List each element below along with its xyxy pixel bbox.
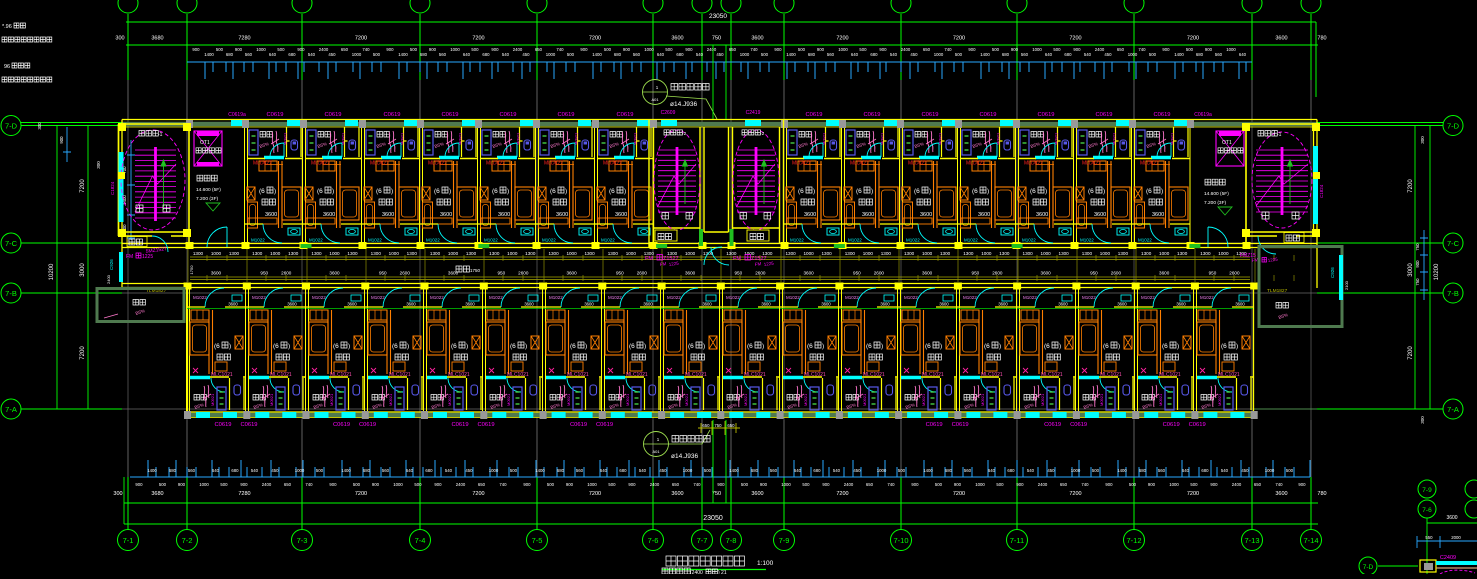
svg-text:1300: 1300 (845, 251, 856, 256)
svg-text:7-6: 7-6 (648, 536, 659, 545)
svg-text:1300: 1300 (1059, 251, 1070, 256)
svg-text:640: 640 (988, 468, 996, 473)
svg-text:7-1: 7-1 (123, 536, 134, 545)
svg-text:7200: 7200 (953, 491, 965, 497)
svg-text:1300: 1300 (371, 251, 382, 256)
svg-text:1000: 1000 (626, 251, 637, 256)
svg-text:560: 560 (633, 52, 641, 57)
svg-text:900: 900 (1148, 482, 1156, 487)
svg-text:900: 900 (911, 482, 919, 487)
svg-text:2600: 2600 (874, 271, 885, 276)
svg-text:680: 680 (1196, 52, 1204, 57)
svg-text:C0619: C0619 (240, 422, 257, 428)
svg-text:1400: 1400 (729, 468, 739, 473)
svg-text:OT1: OT1 (1222, 140, 1232, 146)
svg-text:1000: 1000 (587, 482, 597, 487)
svg-text:1300: 1300 (1141, 251, 1152, 256)
svg-text:1000: 1000 (566, 251, 577, 256)
svg-text:950: 950 (616, 271, 624, 276)
svg-text:1000: 1000 (1159, 251, 1170, 256)
svg-text:500: 500 (608, 482, 616, 487)
svg-text:2600: 2600 (281, 271, 292, 276)
svg-text:1400: 1400 (147, 468, 157, 473)
svg-text:FM: FM (733, 256, 741, 262)
svg-text:7-13: 7-13 (1244, 536, 1259, 545)
svg-text:640: 640 (851, 52, 859, 57)
svg-text:3600: 3600 (685, 271, 696, 276)
svg-text:500: 500 (277, 47, 285, 52)
svg-text:900: 900 (717, 482, 725, 487)
svg-text:750: 750 (1415, 278, 1420, 286)
svg-text:7200: 7200 (836, 36, 848, 42)
svg-text:950: 950 (1090, 271, 1098, 276)
svg-text:450: 450 (1047, 468, 1055, 473)
svg-text:680: 680 (363, 468, 371, 473)
svg-text:C1824: C1824 (110, 181, 115, 195)
svg-text:680: 680 (813, 468, 821, 473)
svg-text:680: 680 (226, 52, 234, 57)
svg-text:C926: C926 (1330, 267, 1335, 278)
svg-text:1000: 1000 (922, 251, 933, 256)
svg-text:650: 650 (478, 482, 486, 487)
svg-text:900: 900 (240, 482, 248, 487)
svg-text:1000: 1000 (546, 52, 556, 57)
svg-text:C0619: C0619 (952, 422, 969, 428)
svg-text:500: 500 (414, 482, 422, 487)
svg-text:680: 680 (1064, 52, 1072, 57)
svg-text:) 21: ) 21 (718, 570, 727, 574)
svg-text:1300: 1300 (940, 251, 951, 256)
svg-text:650: 650 (1254, 482, 1262, 487)
svg-text:1:100: 1:100 (757, 560, 774, 567)
svg-text:C2609: C2609 (661, 110, 676, 116)
svg-text:1000: 1000 (211, 251, 222, 256)
svg-text:C0619: C0619 (557, 112, 574, 118)
svg-text:C0619: C0619 (616, 112, 633, 118)
svg-text:1300: 1300 (881, 251, 892, 256)
svg-text:-2: -2 (760, 131, 765, 137)
svg-text:1300: 1300 (466, 251, 477, 256)
svg-text:-2: -2 (682, 131, 687, 137)
svg-text:900: 900 (491, 47, 499, 52)
svg-text:500: 500 (604, 47, 612, 52)
svg-text:7280: 7280 (238, 491, 250, 497)
svg-text:900: 900 (235, 47, 243, 52)
svg-text:(2400: (2400 (690, 570, 703, 574)
svg-text:2400: 2400 (650, 482, 660, 487)
svg-text:7-10: 7-10 (893, 536, 908, 545)
svg-text:1300: 1300 (311, 251, 322, 256)
svg-text:1000: 1000 (740, 52, 750, 57)
svg-text:640: 640 (406, 468, 414, 473)
svg-text:560: 560 (576, 468, 584, 473)
svg-text:3600: 3600 (1446, 515, 1457, 521)
svg-text:900: 900 (178, 482, 186, 487)
svg-text:500: 500 (802, 482, 810, 487)
svg-text:C0619: C0619 (926, 422, 943, 428)
svg-text:1400: 1400 (980, 52, 990, 57)
svg-text:7200: 7200 (1069, 36, 1081, 42)
svg-text:500: 500 (704, 468, 712, 473)
svg-text:900: 900 (1011, 47, 1019, 52)
svg-text:2400: 2400 (106, 274, 111, 284)
svg-text:500: 500 (1092, 468, 1100, 473)
svg-text:7200: 7200 (472, 491, 484, 497)
svg-text:450: 450 (910, 52, 918, 57)
svg-text:C0619: C0619 (1189, 422, 1206, 428)
svg-text:1300: 1300 (821, 251, 832, 256)
svg-text:650: 650 (702, 423, 710, 428)
svg-text:500: 500 (216, 47, 224, 52)
svg-text:1400: 1400 (923, 468, 933, 473)
svg-text:1750: 1750 (470, 268, 481, 273)
svg-text:740: 740 (944, 47, 952, 52)
svg-text:640: 640 (269, 52, 277, 57)
svg-text:680: 680 (870, 52, 878, 57)
svg-text:450: 450 (271, 468, 279, 473)
svg-text:1000: 1000 (877, 468, 887, 473)
svg-text:450: 450 (853, 468, 861, 473)
svg-text:450: 450 (1104, 52, 1112, 57)
svg-text:740: 740 (1081, 482, 1089, 487)
svg-text:1300: 1300 (548, 251, 559, 256)
svg-text:1300: 1300 (1082, 251, 1093, 256)
svg-text:500: 500 (798, 47, 806, 52)
svg-text:540: 540 (251, 468, 259, 473)
svg-text:740: 740 (556, 47, 564, 52)
svg-text:1300: 1300 (489, 251, 500, 256)
svg-text:C0619: C0619 (1153, 112, 1170, 118)
svg-text:3600: 3600 (922, 271, 933, 276)
svg-text:500: 500 (1286, 468, 1294, 473)
svg-text:3600: 3600 (751, 491, 763, 497)
svg-text:640: 640 (600, 468, 608, 473)
svg-text:900: 900 (1210, 482, 1218, 487)
svg-text:680: 680 (751, 468, 759, 473)
svg-text:2400: 2400 (513, 47, 523, 52)
svg-text:2400: 2400 (844, 482, 854, 487)
svg-text:650: 650 (866, 482, 874, 487)
svg-text:900: 900 (817, 47, 825, 52)
svg-text:560: 560 (1158, 468, 1166, 473)
svg-text:7-B: 7-B (1447, 289, 1459, 298)
svg-text:7-12: 7-12 (1126, 536, 1141, 545)
svg-text:1400: 1400 (204, 52, 214, 57)
svg-text:560: 560 (827, 52, 835, 57)
svg-text:1000: 1000 (389, 251, 400, 256)
svg-text:TLM1827: TLM1827 (1267, 288, 1288, 294)
svg-text:C0619: C0619 (570, 422, 587, 428)
svg-text:680: 680 (231, 468, 239, 473)
svg-text:-1: -1 (158, 132, 163, 138)
svg-text:560: 560 (245, 52, 253, 57)
svg-text:750: 750 (712, 36, 721, 42)
svg-text:560: 560 (1021, 52, 1029, 57)
svg-text:540: 540 (696, 52, 704, 57)
svg-text:900: 900 (59, 136, 64, 144)
svg-text:1300: 1300 (1177, 251, 1188, 256)
svg-text:2400: 2400 (456, 482, 466, 487)
svg-text:7200: 7200 (589, 491, 601, 497)
svg-text:680: 680 (1201, 468, 1209, 473)
svg-text:1000: 1000 (644, 47, 654, 52)
svg-text:1000: 1000 (256, 47, 266, 52)
svg-text:1000: 1000 (1100, 251, 1111, 256)
svg-text:C0619: C0619 (359, 422, 376, 428)
svg-text:C0619: C0619 (979, 112, 996, 118)
svg-text:1000: 1000 (934, 52, 944, 57)
svg-text:650: 650 (341, 47, 349, 52)
svg-text:2400: 2400 (1095, 47, 1105, 52)
svg-text:900: 900 (1073, 47, 1081, 52)
svg-text:C0619: C0619 (441, 112, 458, 118)
svg-text:2600: 2600 (637, 271, 648, 276)
svg-text:2600: 2600 (992, 271, 1003, 276)
svg-text:1300: 1300 (288, 251, 299, 256)
svg-text:7-4: 7-4 (415, 536, 426, 545)
svg-text:C0619: C0619 (863, 112, 880, 118)
svg-text:680: 680 (945, 468, 953, 473)
svg-text:1300: 1300 (1023, 251, 1034, 256)
svg-text:3600: 3600 (671, 491, 683, 497)
svg-text:550: 550 (1425, 535, 1433, 540)
svg-text:FM: FM (126, 254, 133, 260)
svg-text:680: 680 (1139, 468, 1147, 473)
svg-text:650: 650 (672, 482, 680, 487)
svg-text:900: 900 (297, 47, 305, 52)
svg-text:1000: 1000 (448, 251, 459, 256)
svg-text:C0619: C0619 (1163, 422, 1180, 428)
svg-text:500: 500 (410, 47, 418, 52)
svg-text:900: 900 (774, 47, 782, 52)
svg-text:C0619: C0619 (1044, 422, 1061, 428)
svg-text:900: 900 (879, 47, 887, 52)
svg-text:640: 640 (212, 468, 220, 473)
svg-text:450: 450 (716, 52, 724, 57)
svg-text:740: 740 (362, 47, 370, 52)
svg-text:7-14: 7-14 (1303, 536, 1318, 545)
svg-text:650: 650 (729, 47, 737, 52)
svg-text:680: 680 (288, 52, 296, 57)
svg-text:2400: 2400 (707, 47, 717, 52)
svg-text:1400: 1400 (1117, 468, 1127, 473)
svg-text:C0619a: C0619a (1194, 112, 1212, 118)
svg-text:7-A: 7-A (5, 405, 17, 414)
svg-text:950: 950 (1209, 271, 1217, 276)
svg-text:540: 540 (445, 468, 453, 473)
svg-text:7-5: 7-5 (532, 536, 543, 545)
svg-text:500: 500 (373, 52, 381, 57)
svg-text:900: 900 (135, 482, 143, 487)
svg-text:560: 560 (439, 52, 447, 57)
svg-text:500: 500 (547, 482, 555, 487)
svg-text:900: 900 (623, 47, 631, 52)
svg-text:C1824: C1824 (1319, 184, 1324, 198)
svg-text:7-9: 7-9 (779, 536, 790, 545)
svg-text:2000: 2000 (1451, 535, 1461, 540)
svg-text:900: 900 (192, 47, 200, 52)
svg-text:OT1: OT1 (200, 140, 210, 146)
svg-text:3000: 3000 (80, 263, 86, 277)
svg-text:3600: 3600 (448, 271, 459, 276)
svg-text:C0619: C0619 (805, 112, 822, 118)
svg-text:C0619: C0619 (499, 112, 516, 118)
svg-text:500: 500 (316, 468, 324, 473)
svg-text:7-2: 7-2 (182, 536, 193, 545)
svg-text:3600: 3600 (566, 271, 577, 276)
svg-text:2400: 2400 (1232, 482, 1242, 487)
svg-text:7-D: 7-D (1447, 122, 1460, 131)
svg-text:650: 650 (1117, 47, 1125, 52)
svg-text:1000: 1000 (981, 251, 992, 256)
svg-text:500: 500 (935, 482, 943, 487)
svg-text:450: 450 (659, 468, 667, 473)
svg-text:1000: 1000 (1226, 47, 1236, 52)
svg-text:1000: 1000 (1128, 52, 1138, 57)
svg-text:7200: 7200 (1069, 491, 1081, 497)
svg-text:1300: 1300 (1118, 251, 1129, 256)
svg-text:2600: 2600 (1229, 271, 1240, 276)
svg-text:7-11: 7-11 (1010, 536, 1024, 545)
svg-text:900: 900 (628, 482, 636, 487)
svg-text:C0619: C0619 (383, 112, 400, 118)
svg-text:C0619: C0619 (266, 112, 283, 118)
svg-text:A01: A01 (652, 449, 660, 454)
svg-text:950: 950 (497, 271, 505, 276)
svg-text:1750: 1750 (189, 265, 194, 275)
svg-text:7200: 7200 (1187, 491, 1199, 497)
svg-text:750: 750 (714, 423, 722, 428)
svg-text:1300: 1300 (430, 251, 441, 256)
svg-text:1300: 1300 (584, 251, 595, 256)
svg-text:FM: FM (659, 261, 666, 267)
svg-text:640: 640 (1239, 52, 1247, 57)
svg-text:23050: 23050 (703, 515, 723, 522)
svg-text:C0619: C0619 (1070, 422, 1087, 428)
svg-text:900: 900 (685, 47, 693, 52)
svg-text:7200: 7200 (1187, 36, 1199, 42)
svg-text:10200: 10200 (1434, 263, 1440, 280)
svg-text:680: 680 (676, 52, 684, 57)
svg-text:C0619: C0619 (333, 422, 350, 428)
svg-text:540: 540 (502, 52, 510, 57)
svg-text:650: 650 (923, 47, 931, 52)
svg-text:500: 500 (761, 52, 769, 57)
svg-text:300: 300 (113, 491, 122, 497)
svg-text:3600: 3600 (1159, 271, 1170, 276)
svg-text:500: 500 (353, 482, 361, 487)
svg-text:7.200 (3F): 7.200 (3F) (196, 196, 219, 202)
svg-text:900: 900 (434, 482, 442, 487)
svg-text:*.96: *.96 (2, 24, 12, 30)
svg-text:7-6: 7-6 (1422, 507, 1432, 514)
svg-text:780: 780 (1317, 36, 1326, 42)
svg-text:1300: 1300 (904, 251, 915, 256)
svg-text:FM: FM (754, 261, 761, 267)
svg-text:7200: 7200 (80, 179, 86, 193)
svg-text:540: 540 (639, 468, 647, 473)
svg-text:900: 900 (523, 482, 531, 487)
svg-text:7200: 7200 (836, 491, 848, 497)
svg-text:C0619: C0619 (921, 112, 938, 118)
svg-text:1300: 1300 (963, 251, 974, 256)
svg-text:3000: 3000 (1408, 263, 1414, 277)
svg-text:500: 500 (996, 482, 1004, 487)
svg-text:C2409: C2409 (1440, 555, 1456, 561)
svg-text:1000: 1000 (781, 482, 791, 487)
svg-text:740: 740 (1138, 47, 1146, 52)
svg-text:1000: 1000 (270, 251, 281, 256)
svg-text:680: 680 (425, 468, 433, 473)
svg-text:950: 950 (379, 271, 387, 276)
svg-text:680: 680 (808, 52, 816, 57)
svg-text:640: 640 (463, 52, 471, 57)
svg-text:500: 500 (1129, 482, 1137, 487)
svg-text:1400: 1400 (341, 468, 351, 473)
svg-text:ø14.J936: ø14.J936 (670, 101, 697, 108)
svg-text:680: 680 (619, 468, 627, 473)
svg-text:7-C: 7-C (1447, 239, 1460, 248)
svg-text:1400: 1400 (786, 52, 796, 57)
svg-text:1000: 1000 (863, 251, 874, 256)
svg-text:900: 900 (1205, 47, 1213, 52)
svg-text:1000: 1000 (1032, 47, 1042, 52)
svg-text:1000: 1000 (685, 251, 696, 256)
svg-text:3600: 3600 (1275, 36, 1287, 42)
svg-text:C0619: C0619 (477, 422, 494, 428)
svg-text:7200: 7200 (355, 36, 367, 42)
svg-text:2600: 2600 (755, 271, 766, 276)
svg-text:740: 740 (750, 47, 758, 52)
svg-text:540: 540 (1084, 52, 1092, 57)
svg-text:1000: 1000 (393, 482, 403, 487)
svg-text:7-8: 7-8 (726, 536, 737, 545)
svg-text:900: 900 (1415, 260, 1420, 268)
svg-text:900: 900 (1162, 47, 1170, 52)
svg-text:7-D: 7-D (1363, 564, 1374, 571)
svg-text:1000: 1000 (1041, 251, 1052, 256)
svg-text:740: 740 (305, 482, 313, 487)
svg-text:1225: 1225 (142, 254, 153, 260)
svg-text:3600: 3600 (1275, 491, 1287, 497)
svg-text:7-B: 7-B (5, 289, 17, 298)
svg-text:1000: 1000 (450, 47, 460, 52)
svg-text:560: 560 (382, 468, 390, 473)
svg-text:300: 300 (37, 122, 42, 130)
svg-text:500: 500 (1053, 47, 1061, 52)
svg-text:1400: 1400 (592, 52, 602, 57)
svg-text:C0619: C0619 (1037, 112, 1054, 118)
svg-text:2400: 2400 (901, 47, 911, 52)
svg-text:1000: 1000 (1169, 482, 1179, 487)
svg-text:740: 740 (887, 482, 895, 487)
svg-text:1000: 1000 (329, 251, 340, 256)
svg-text:1000: 1000 (489, 468, 499, 473)
svg-text:900: 900 (1105, 482, 1113, 487)
svg-text:10200: 10200 (49, 263, 55, 280)
svg-text:1300: 1300 (347, 251, 358, 256)
svg-text:C926: C926 (109, 259, 114, 270)
svg-text:C0619: C0619 (1095, 112, 1112, 118)
svg-text:1000: 1000 (1071, 468, 1081, 473)
svg-text:7.200 (3F): 7.200 (3F) (1204, 200, 1227, 206)
svg-text:1000: 1000 (1218, 251, 1229, 256)
svg-text:900: 900 (329, 482, 337, 487)
svg-text:900: 900 (822, 482, 830, 487)
svg-text:7-9: 7-9 (1422, 487, 1432, 494)
svg-text:1000: 1000 (295, 468, 305, 473)
svg-text:740: 740 (693, 482, 701, 487)
